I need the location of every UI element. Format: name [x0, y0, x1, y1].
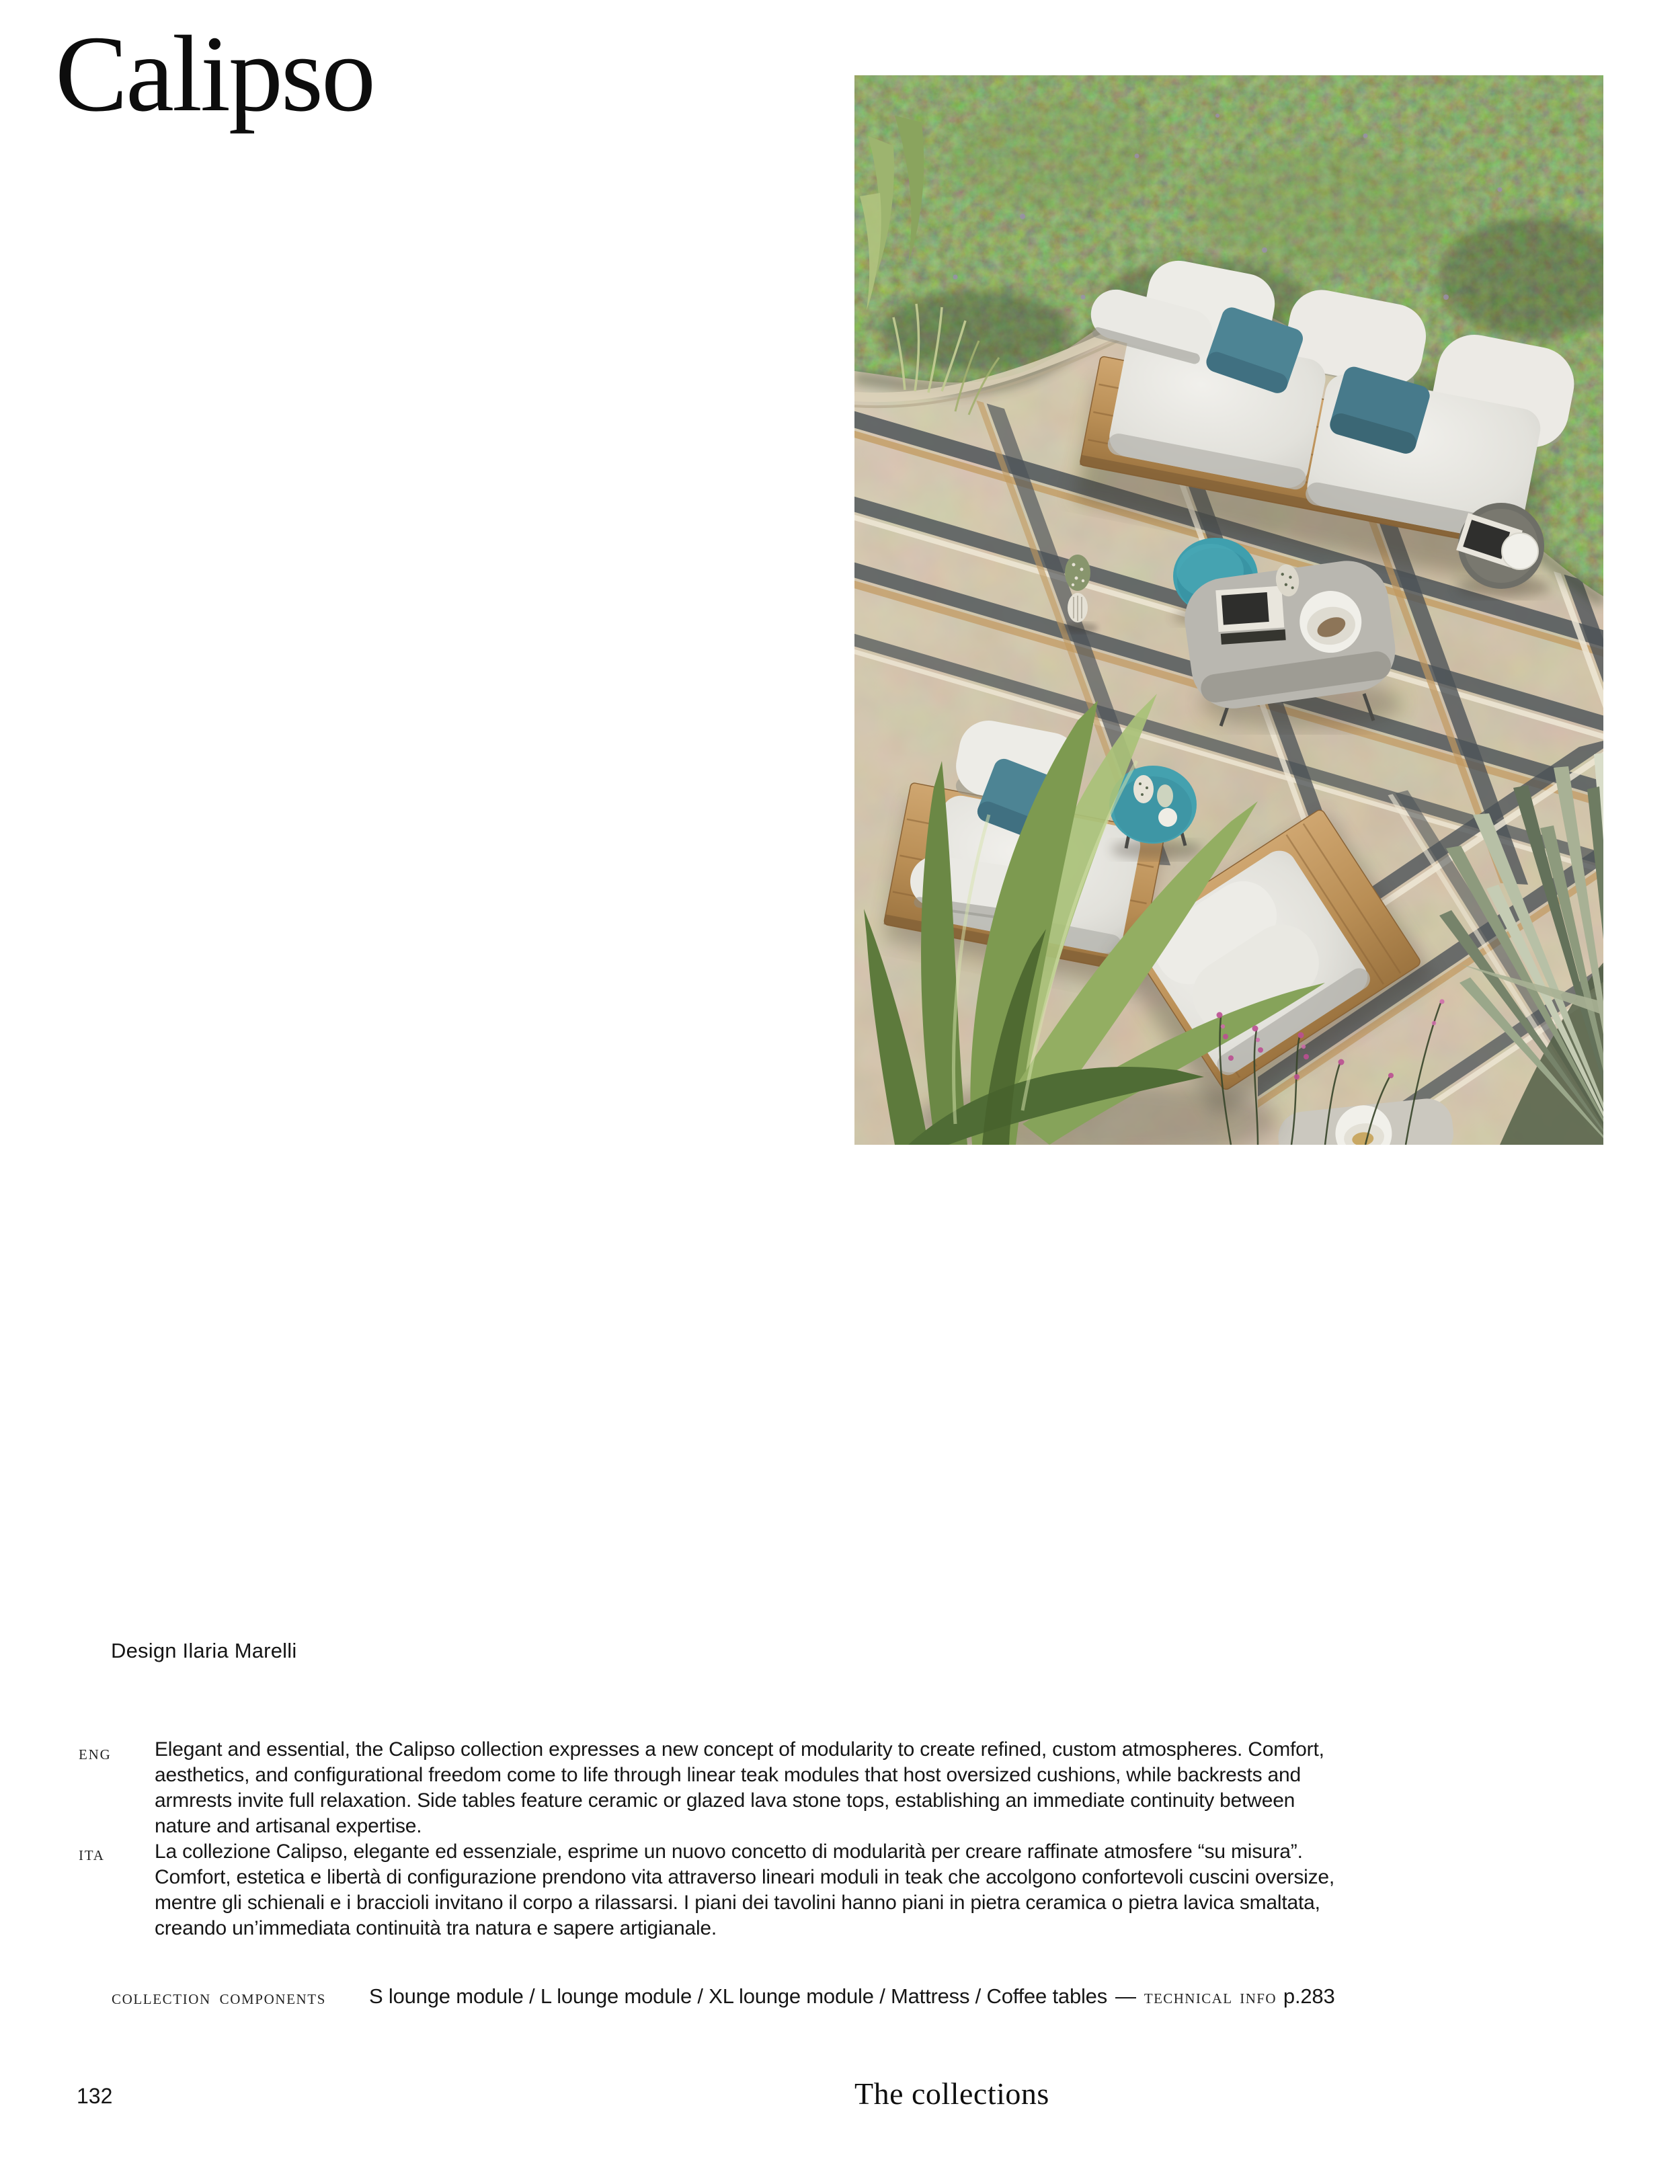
technical-info-label: TECHNICAL INFO: [1144, 1990, 1277, 2007]
technical-info-page: p.283: [1283, 1984, 1335, 2009]
collection-components-label: COLLECTION COMPONENTS: [112, 1991, 326, 2008]
outdoor-lounge-aerial-illustration: [854, 75, 1603, 1145]
catalog-page: Calipso: [0, 0, 1680, 2184]
footer-section-title: The collections: [854, 2076, 1049, 2111]
language-label-eng: ENG: [79, 1746, 112, 1763]
hero-photo: [854, 75, 1603, 1145]
page-title: Calipso: [55, 15, 374, 134]
book-stack: [1215, 585, 1285, 645]
designer-credit: Design Ilaria Marelli: [111, 1639, 296, 1663]
components-separator: —: [1115, 1984, 1136, 2009]
description-ita: La collezione Calipso, elegante ed essen…: [155, 1839, 1640, 1941]
collection-components-list: S lounge module / L lounge module / XL l…: [369, 1984, 1334, 2009]
components-items: S lounge module / L lounge module / XL l…: [369, 1984, 1107, 2009]
page-number: 132: [77, 2084, 112, 2109]
description-eng: Elegant and essential, the Calipso colle…: [155, 1737, 1640, 1839]
language-label-ita: ITA: [79, 1847, 105, 1864]
